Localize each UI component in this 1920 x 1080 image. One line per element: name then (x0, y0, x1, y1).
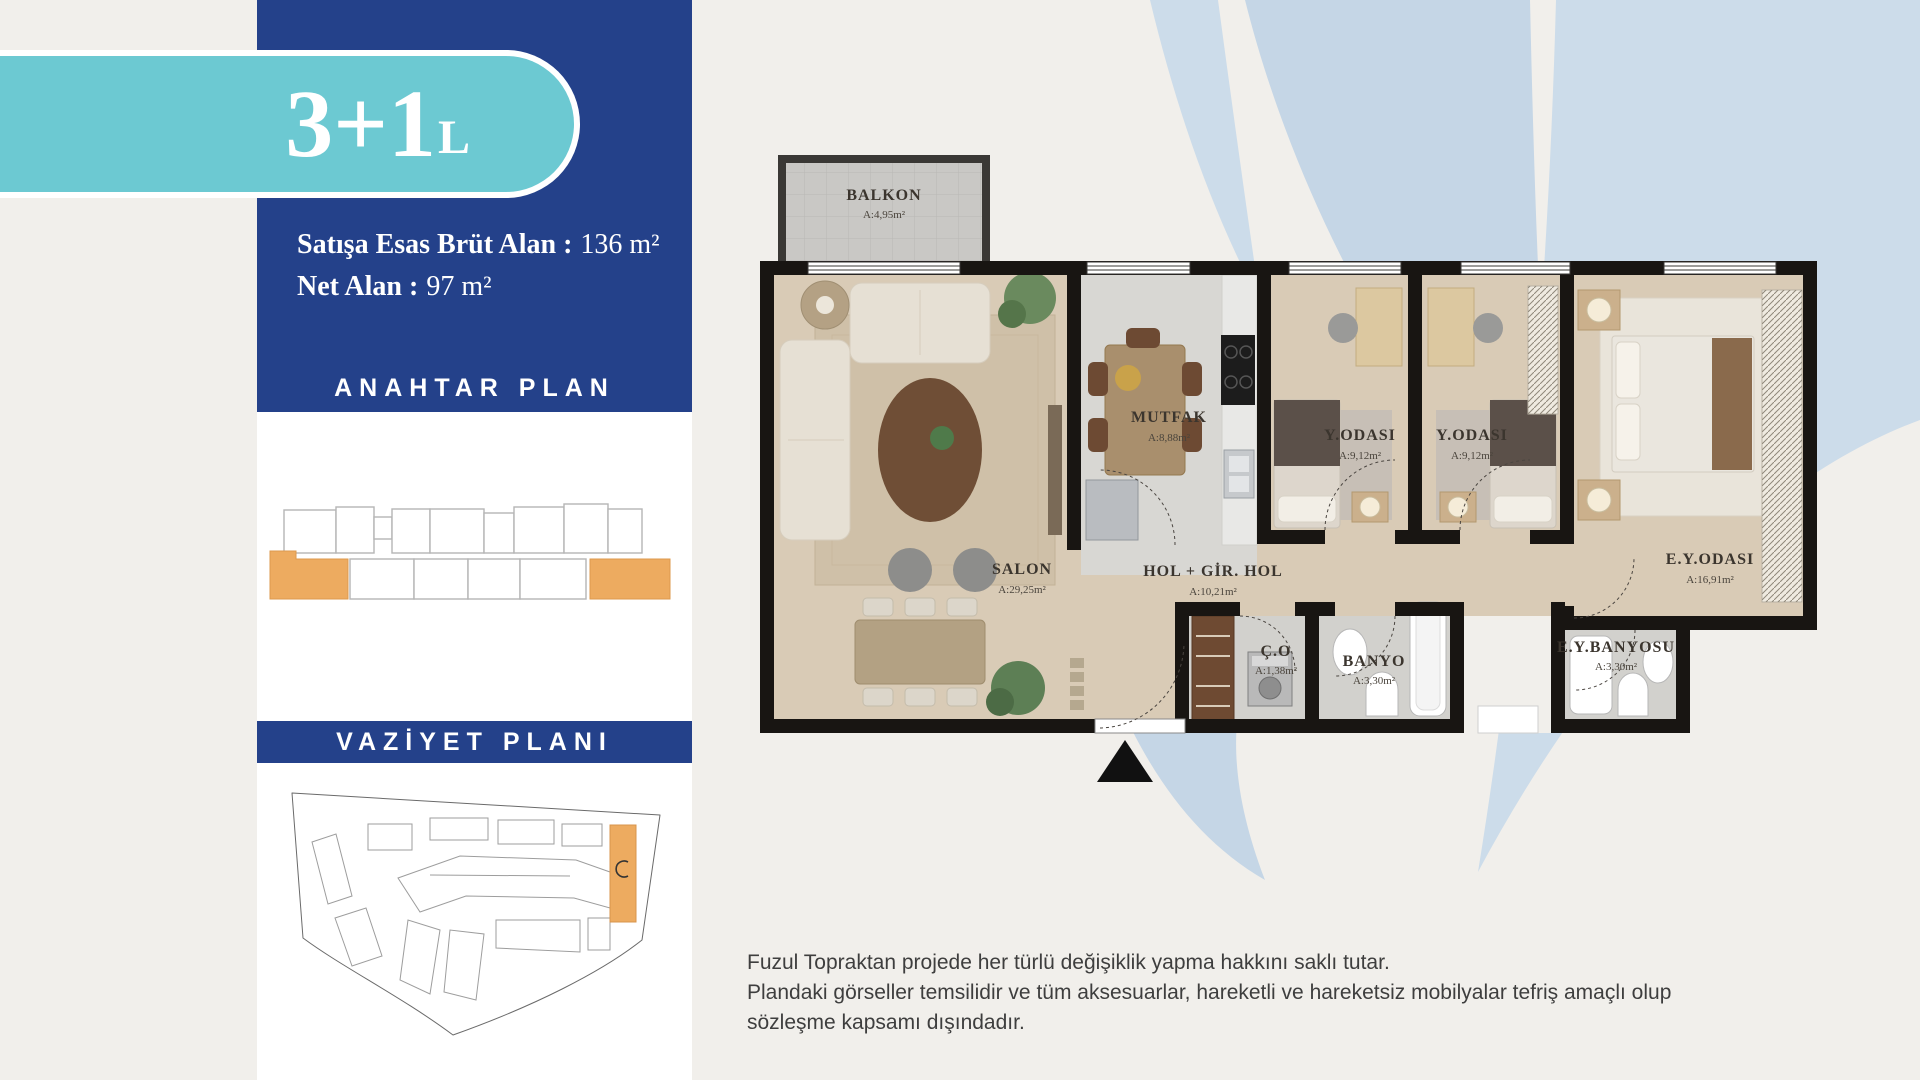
key-plan-title: ANAHTAR PLAN (257, 374, 692, 403)
room-label-mutfak: MUTFAK (1131, 409, 1207, 426)
room-label-ey-banyosu: E.Y.BANYOSU (1557, 639, 1675, 656)
unit-type-main: 3+1 (285, 76, 436, 172)
net-area-value: 97 m² (426, 271, 491, 302)
key-plan-highlight-unit-left (270, 551, 348, 599)
room-area-balkon: A:4,95m² (863, 209, 906, 221)
entrance-marker-icon (1097, 740, 1153, 782)
room-area-y-odasi-1: A:9,12m² (1339, 450, 1382, 462)
room-label-co: Ç.O (1261, 643, 1292, 660)
room-balkon: BALKON A:4,95m² (778, 155, 990, 261)
room-label-y-odasi-2: Y.ODASI (1436, 427, 1508, 444)
net-area-label: Net Alan : (297, 271, 418, 302)
room-label-hol: HOL + GİR. HOL (1143, 561, 1283, 580)
page: 3+1 L Satışa Esas Brüt Alan :136 m² Net … (0, 0, 1920, 1080)
disclaimer: Fuzul Topraktan projede her türlü değişi… (747, 948, 1732, 1038)
room-label-balkon: BALKON (846, 187, 921, 204)
gross-area-line: Satışa Esas Brüt Alan :136 m² (297, 224, 687, 266)
room-label-y-odasi-1: Y.ODASI (1324, 427, 1396, 444)
key-plan (266, 503, 676, 603)
room-area-mutfak: A:8,88m² (1148, 432, 1191, 444)
notch-window (1478, 706, 1538, 733)
room-area-ey-odasi: A:16,91m² (1686, 574, 1734, 586)
room-label-ey-odasi: E.Y.ODASI (1666, 551, 1754, 568)
room-area-ey-banyosu: A:3,30m² (1595, 661, 1638, 673)
disclaimer-line-2: Plandaki görseller temsilidir ve tüm aks… (747, 978, 1732, 1038)
room-area-y-odasi-2: A:9,12m² (1451, 450, 1494, 462)
unit-type-suffix: L (438, 114, 470, 162)
room-label-salon: SALON (992, 561, 1052, 578)
site-plan (280, 780, 684, 1075)
gross-area-label: Satışa Esas Brüt Alan : (297, 229, 572, 260)
site-plan-title: VAZİYET PLANI (336, 728, 613, 757)
area-info-block: Satışa Esas Brüt Alan :136 m² Net Alan :… (297, 224, 687, 308)
room-area-salon: A:29,25m² (998, 584, 1046, 596)
unit-type-badge: 3+1 L (0, 50, 580, 198)
disclaimer-line-1: Fuzul Topraktan projede her türlü değişi… (747, 948, 1732, 978)
room-label-banyo: BANYO (1343, 653, 1406, 670)
site-highlight-building (610, 825, 636, 922)
room-area-banyo: A:3,30m² (1353, 675, 1396, 687)
room-area-hol: A:10,21m² (1189, 586, 1237, 598)
gross-area-value: 136 m² (580, 229, 659, 260)
net-area-line: Net Alan :97 m² (297, 266, 687, 308)
site-plan-title-bar: VAZİYET PLANI (257, 721, 692, 763)
room-area-co: A:1,38m² (1255, 665, 1298, 677)
floor-plan: BALKON A:4,95m² (760, 150, 1820, 785)
key-plan-highlight-unit-right (590, 559, 670, 599)
